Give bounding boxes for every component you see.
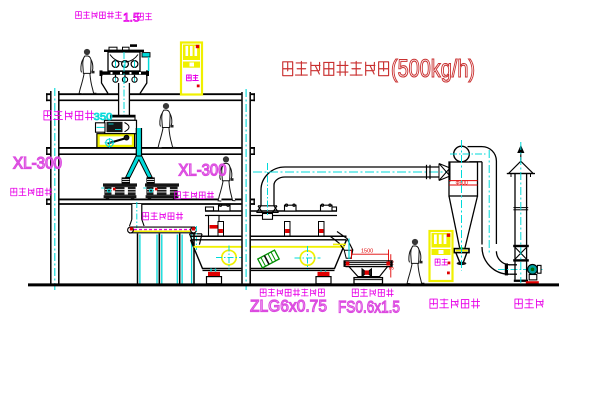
svg-text:350: 350 (94, 111, 113, 123)
svg-text:FS0.6x1.5: FS0.6x1.5 (338, 298, 400, 317)
svg-text:1500: 1500 (361, 249, 373, 255)
svg-text:(500kg/h): (500kg/h) (391, 55, 475, 83)
svg-text:XL-300: XL-300 (13, 155, 62, 173)
svg-text:XL-300: XL-300 (179, 162, 227, 180)
svg-text:ZLG6x0.75: ZLG6x0.75 (250, 297, 327, 316)
